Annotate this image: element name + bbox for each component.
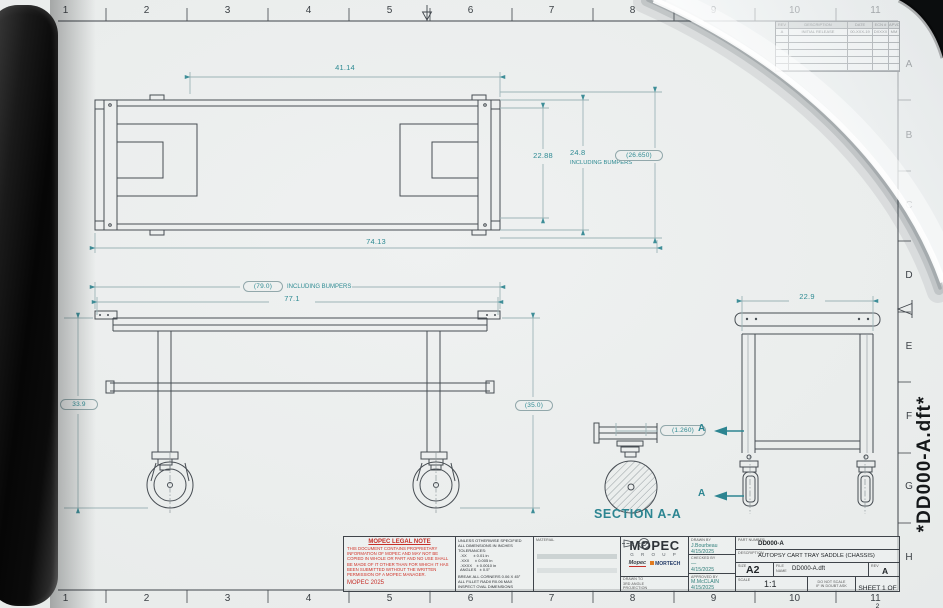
mortech-logo: MORTECH [650, 561, 680, 567]
drawing-sheet: 1234567891011 1234567891011 ABCDEFGH 41.… [0, 0, 943, 608]
zone-number: 6 [430, 4, 511, 18]
legal-note-body: THIS DOCUMENT CONTAINS PROPRIETARY INFOR… [347, 546, 452, 577]
dim-top-overall-length: 74.13 [356, 237, 396, 247]
legal-note-footer: MOPEC 2025 [347, 580, 452, 586]
info-column: PART NUMBER DD000-A DESCRIPTION AUTOPSY … [736, 537, 899, 591]
file-name-value: DD000-A.dft [792, 566, 825, 572]
approved-by-date: 4/15/2025 [691, 585, 733, 591]
section-arrow-label-top: A [698, 423, 705, 434]
dim-top-width: 22.88 [523, 151, 563, 161]
revision-cell [848, 50, 873, 57]
revision-header-cell: APVD [889, 22, 899, 29]
file-name-cell: FILE NAME DD000-A.dft [774, 563, 869, 576]
checked-by-date: 4/15/2025 [691, 567, 733, 573]
zone-letter: C [898, 171, 920, 241]
ruler-top: 1234567891011 [25, 4, 916, 18]
revision-cell: MM [889, 29, 899, 36]
revision-cell [776, 36, 789, 43]
legal-note-title: MOPEC LEGAL NOTE [347, 539, 452, 545]
do-not-scale-line2: IF IN DOUBT ASK [808, 584, 855, 589]
revision-cell [776, 64, 789, 71]
zone-letter: E [898, 312, 920, 382]
dim-end-width: 22.9 [787, 292, 827, 302]
part-number-row: PART NUMBER DD000-A [736, 537, 899, 550]
size-file-rev-row: SIZE A2 FILE NAME DD000-A.dft REV A [736, 563, 899, 577]
zone-number: 8 [592, 592, 673, 606]
revision-cell [873, 36, 889, 43]
revision-cell [789, 57, 848, 64]
checked-by-row: CHECKED BY — 4/15/2025 [689, 555, 735, 573]
top-view [95, 95, 500, 235]
revision-cell: INITIAL RELEASE [789, 29, 848, 36]
revision-cell [776, 43, 789, 50]
revision-cell [889, 43, 899, 50]
material-field-bar [537, 554, 617, 559]
size-cell: SIZE A2 [736, 563, 774, 576]
revision-cell [889, 64, 899, 71]
logo-box: MOPEC G R O U P Mopec MORTECH DRAWN TO 3… [621, 537, 689, 591]
dim-front-length: 77.1 [272, 294, 312, 304]
ruler-bottom: 1234567891011 [25, 592, 916, 606]
cad-drawing [0, 0, 943, 608]
zone-number: 5 [349, 592, 430, 606]
revision-table: REVDESCRIPTIONDATEECN #APVD AINITIAL REL… [775, 21, 900, 72]
zone-number: 6 [430, 592, 511, 606]
revision-cell: A [776, 29, 789, 36]
title-block: MOPEC LEGAL NOTE THIS DOCUMENT CONTAINS … [343, 536, 900, 592]
zone-number: 3 [187, 592, 268, 606]
description-value: AUTOPSY CART TRAY SADDLE (CHASSIS) [758, 553, 875, 559]
revision-cell [848, 64, 873, 71]
drawn-by-date: 4/15/2025 [691, 549, 733, 555]
material-box: MATERIAL [534, 537, 621, 591]
zone-letter: A [898, 30, 920, 100]
zone-number: 11 [835, 4, 916, 18]
sheet-cell: SHEET 1 OF 2 [856, 577, 899, 591]
zone-number: 4 [268, 592, 349, 606]
legal-note: MOPEC LEGAL NOTE THIS DOCUMENT CONTAINS … [344, 537, 456, 591]
revision-row: AINITIAL RELEASE00-XXX-19DXXXXMM [776, 29, 899, 36]
third-angle-projection-icon [621, 537, 653, 550]
zone-number: 2 [106, 4, 187, 18]
revision-cell [873, 50, 889, 57]
revision-row [776, 50, 899, 57]
revision-cell [873, 64, 889, 71]
revision-cell [889, 36, 899, 43]
front-view [95, 311, 500, 513]
zone-number: 7 [511, 4, 592, 18]
end-view [735, 313, 880, 514]
material-field-bar-2 [537, 568, 617, 573]
front-view-dimensions [64, 282, 540, 508]
revision-row [776, 57, 899, 64]
zone-number: 9 [673, 4, 754, 18]
revision-header-cell: DESCRIPTION [789, 22, 848, 29]
revision-cell [889, 57, 899, 64]
revision-cell [789, 43, 848, 50]
revision-row [776, 36, 899, 43]
rev-label: REV [871, 564, 879, 569]
revision-row [776, 64, 899, 71]
scale-sheet-row: SCALE 1:1 DO NOT SCALE IF IN DOUBT ASK S… [736, 577, 899, 591]
revision-table-body: AINITIAL RELEASE00-XXX-19DXXXXMM [776, 29, 899, 71]
do-not-scale-cell: DO NOT SCALE IF IN DOUBT ASK [808, 577, 856, 591]
revision-cell [889, 50, 899, 57]
drawn-by-row: DRAWN BY J.Bourbeau 4/15/2025 [689, 537, 735, 555]
mopec-group-label: G R O U P [621, 552, 688, 558]
section-arrow-label-bottom: A [698, 488, 705, 499]
zone-number: 8 [592, 4, 673, 18]
zone-number: 10 [754, 4, 835, 18]
material-label: MATERIAL [536, 538, 555, 543]
mopec-sub-brand-logo: Mopec [629, 560, 646, 567]
rolled-paper-edge [0, 5, 58, 606]
dim-top-width-bumpers: 24.8 [570, 148, 600, 158]
part-number-value: DD000-A [758, 540, 784, 547]
revision-cell [873, 57, 889, 64]
revision-cell [789, 64, 848, 71]
description-row: DESCRIPTION AUTOPSY CART TRAY SADDLE (CH… [736, 550, 899, 563]
dim-front-length-bumpers: (79.0) [243, 281, 283, 292]
dim-top-inner-length: 41.14 [325, 63, 365, 73]
revision-cell [848, 57, 873, 64]
zone-number: 2 [106, 592, 187, 606]
approved-by-row: APPROVED BY M.McCLAIN 4/15/2025 [689, 574, 735, 591]
revision-row [776, 43, 899, 50]
revision-header-cell: REV [776, 22, 789, 29]
scale-label: SCALE [738, 578, 750, 583]
revision-table-header: REVDESCRIPTIONDATEECN #APVD [776, 22, 899, 29]
dim-front-height-ref: (35.0) [515, 400, 553, 411]
tolerance-line: INSPECT OVAL DIMENSIONS [458, 585, 531, 590]
rev-cell: REV A [869, 563, 899, 576]
revision-header-cell: ECN # [873, 22, 889, 29]
zone-number: 5 [349, 4, 430, 18]
section-detail [594, 423, 658, 513]
revision-cell [776, 50, 789, 57]
revision-header-cell: DATE [848, 22, 873, 29]
zone-number: 4 [268, 4, 349, 18]
scale-cell: SCALE 1:1 [736, 577, 808, 591]
zone-letter: D [898, 241, 920, 311]
dim-top-width-ref: (26.650) [615, 150, 663, 161]
rev-value: A [882, 566, 888, 576]
revision-cell [789, 50, 848, 57]
zone-number: 7 [511, 592, 592, 606]
zone-number: 9 [673, 592, 754, 606]
tolerance-notes: UNLESS OTHERWISE SPECIFIEDALL DIMENSIONS… [456, 537, 534, 591]
zone-number: 10 [754, 592, 835, 606]
revision-cell: 00-XXX-19 [848, 29, 873, 36]
file-name-label: FILE NAME [776, 564, 790, 573]
scale-value: 1:1 [764, 579, 777, 589]
revision-cell [848, 36, 873, 43]
dim-front-length-bumpers-note: INCLUDING BUMPERS [287, 282, 377, 292]
section-title: SECTION A-A [594, 507, 681, 521]
size-value: A2 [746, 564, 759, 576]
vertical-file-label: *DD000-A.dft* [914, 374, 936, 554]
revision-cell [848, 43, 873, 50]
revision-cell [873, 43, 889, 50]
revision-cell [776, 57, 789, 64]
revision-cell [789, 36, 848, 43]
signature-column: DRAWN BY J.Bourbeau 4/15/2025 CHECKED BY… [689, 537, 736, 591]
zone-number: 3 [187, 4, 268, 18]
projection-note: DRAWN TO 3RD ANGLE PROJECTION [623, 577, 649, 591]
revision-cell: DXXXX [873, 29, 889, 36]
zone-letter: B [898, 100, 920, 170]
